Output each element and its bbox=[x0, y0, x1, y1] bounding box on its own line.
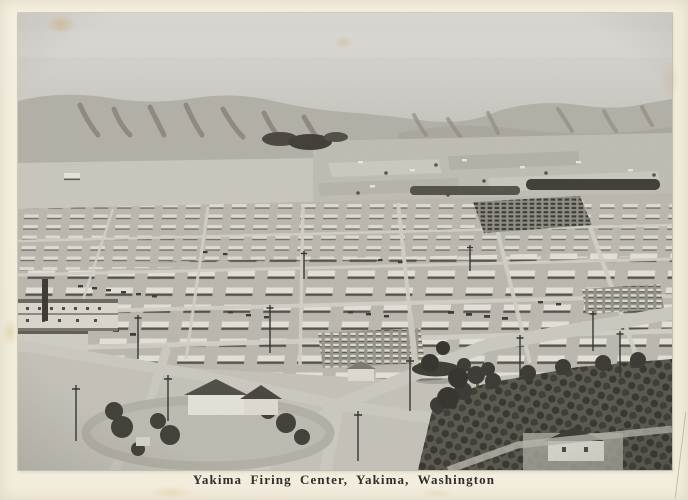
postcard: Yakima Firing Center, Yakima, Washington bbox=[0, 0, 688, 500]
paper-stain bbox=[2, 318, 18, 346]
aerial-photo bbox=[18, 13, 672, 470]
postcard-caption: Yakima Firing Center, Yakima, Washington bbox=[0, 472, 688, 494]
photo-frame bbox=[18, 13, 672, 470]
